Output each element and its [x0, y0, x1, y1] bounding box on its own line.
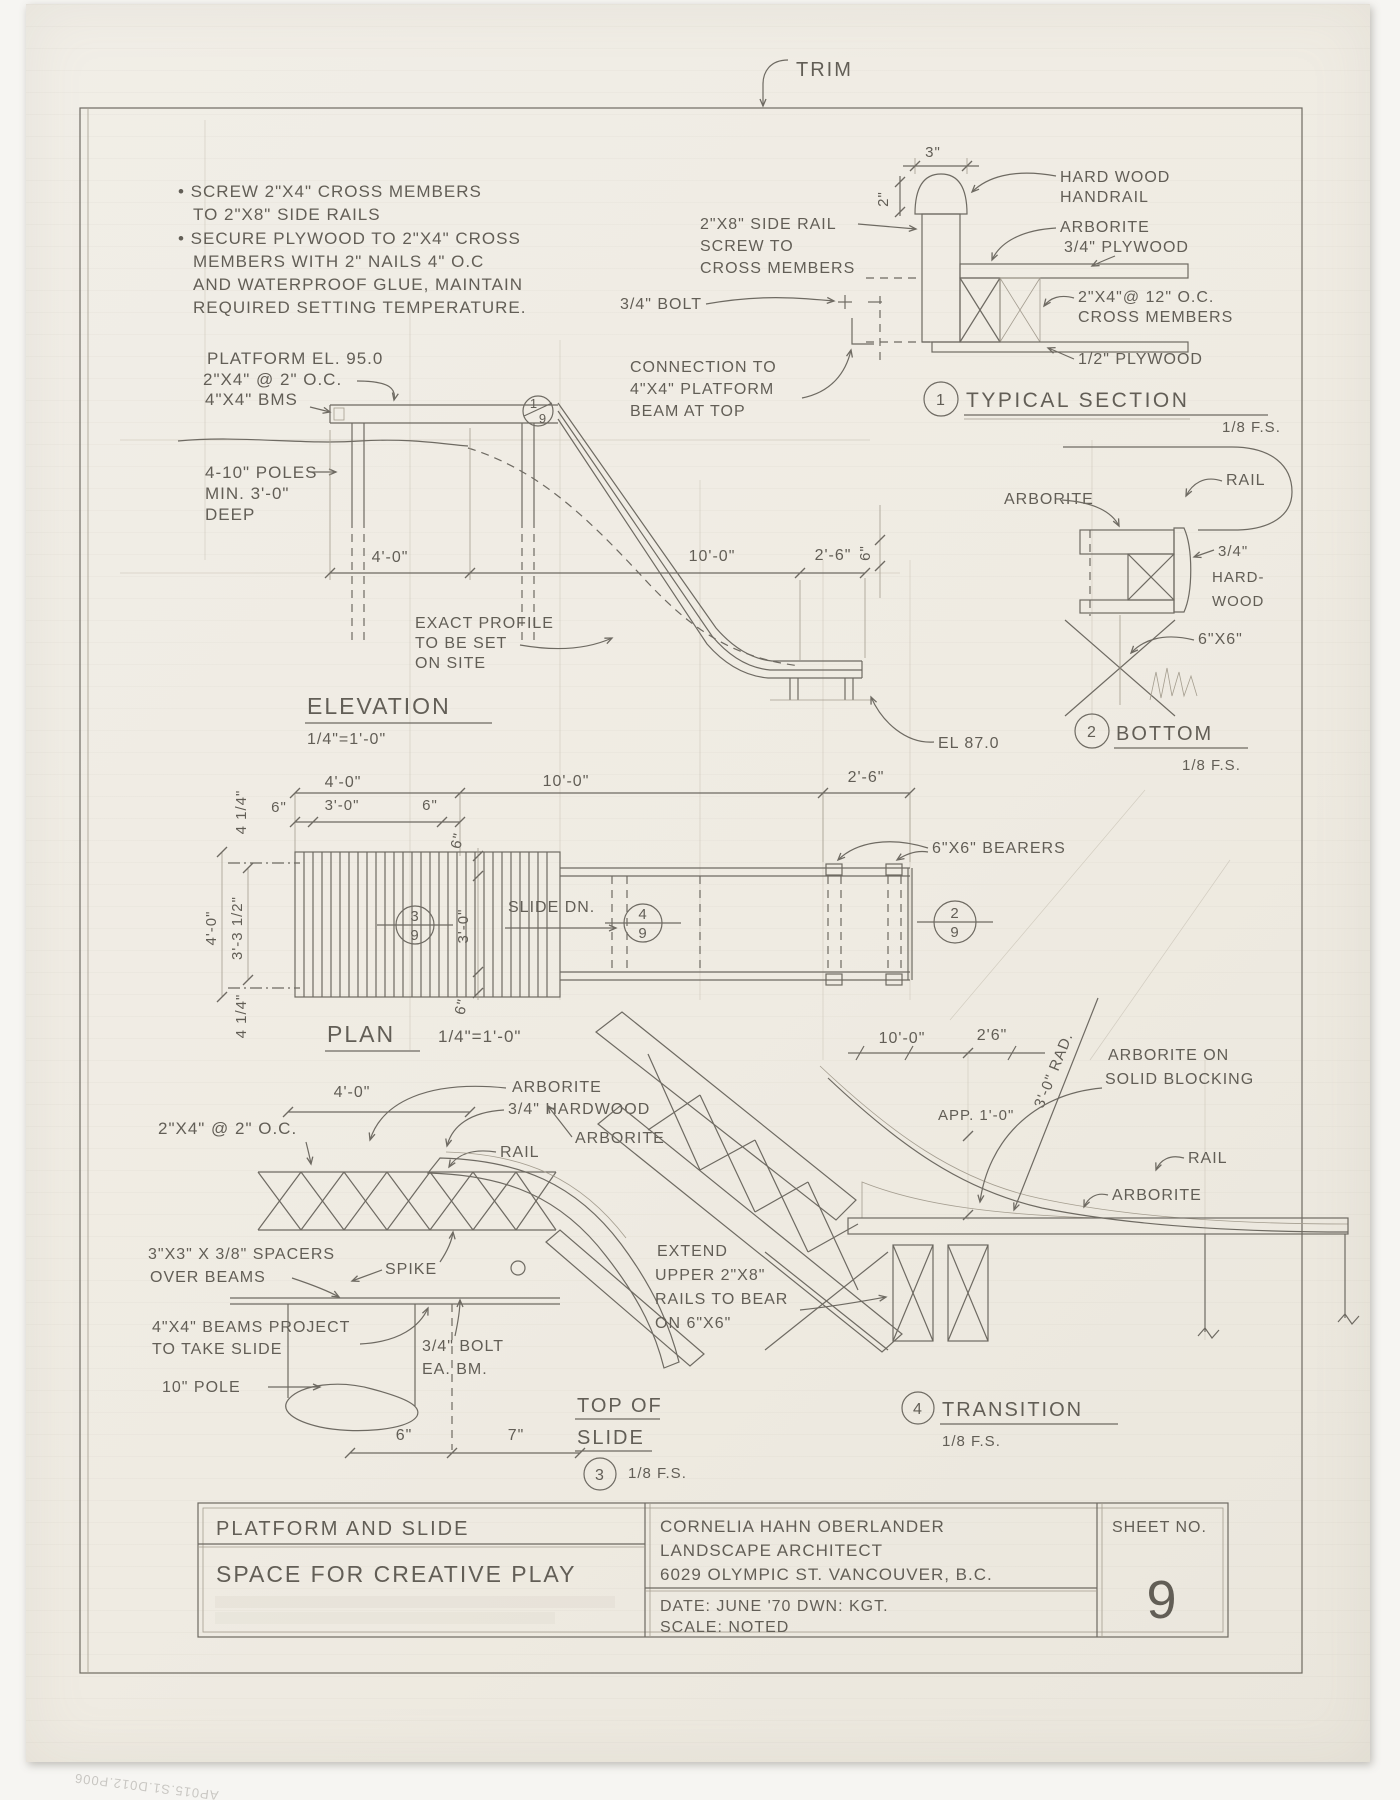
poles-label: DEEP — [205, 505, 255, 524]
section-marker: 1 — [530, 396, 538, 411]
side-rail-label: CROSS MEMBERS — [700, 260, 855, 277]
dim: 6" — [422, 797, 438, 814]
beams-label: 4"X4" BMS — [205, 390, 298, 409]
sheet-no-label: SHEET NO. — [1112, 1519, 1207, 1536]
arborite-label: ARBORITE — [575, 1130, 665, 1147]
section-marker: 4 — [638, 906, 647, 923]
trim-label: TRIM — [796, 59, 853, 81]
cross-members-label: 2"X4"@ 12" O.C. — [1078, 289, 1214, 306]
date-line: DATE: JUNE '70 DWN: KGT. — [660, 1598, 889, 1615]
poles-label: 4-10" POLES — [205, 463, 317, 482]
hardwood-label: HARD- — [1212, 569, 1265, 586]
detail-title: TYPICAL SECTION — [966, 389, 1189, 412]
rail-label: RAIL — [1188, 1150, 1228, 1167]
view-scale: 1/4"=1'-0" — [307, 731, 386, 748]
blocking-label: SOLID BLOCKING — [1105, 1071, 1254, 1088]
general-notes: • SCREW 2"X4" CROSS MEMBERS TO 2"X8" SID… — [178, 182, 526, 317]
detail-scale: 1/8 F.S. — [1182, 757, 1241, 774]
plywood-12-label: 1/2" PLYWOOD — [1078, 351, 1203, 368]
detail-title: SLIDE — [577, 1427, 645, 1449]
extend-label: UPPER 2"X8" — [655, 1267, 765, 1284]
dim: 6" — [447, 831, 467, 851]
dim: 2'-6" — [815, 547, 852, 564]
detail-title: BOTTOM — [1116, 723, 1213, 745]
dim: 4'-0" — [203, 911, 220, 946]
arborite-label: ARBORITE — [1060, 219, 1150, 236]
bolt-label: 3/4" BOLT — [422, 1338, 504, 1355]
detail-scale: 1/8 F.S. — [1222, 419, 1281, 436]
dim: 4 1/4" — [233, 790, 250, 835]
platform-el-label: PLATFORM EL. 95.0 — [207, 349, 383, 368]
hardwood-handrail-label: HANDRAIL — [1060, 189, 1149, 206]
scanned-drawing-sheet: TRIM • SCREW 2"X4" CROSS MEMBERS TO 2"X8… — [0, 0, 1400, 1800]
beams-label: 4"X4" BEAMS PROJECT — [152, 1319, 350, 1336]
side-rail-label: SCREW TO — [700, 238, 794, 255]
dim: 2'-6" — [848, 769, 885, 786]
hardwood-handrail-label: HARD WOOD — [1060, 169, 1170, 186]
dim: 10'-0" — [879, 1030, 926, 1047]
archive-pencil-note: AP015.S1.D012.P006 — [73, 1771, 219, 1800]
spacers-label: 3"X3" X 3/8" SPACERS — [148, 1246, 335, 1263]
detail-scale: 1/8 F.S. — [628, 1465, 687, 1482]
project-subtitle: SPACE FOR CREATIVE PLAY — [216, 1561, 576, 1587]
detail-scale: 1/8 F.S. — [942, 1433, 1001, 1450]
dim: 2'6" — [977, 1027, 1008, 1044]
note-line: REQUIRED SETTING TEMPERATURE. — [193, 298, 526, 317]
dim: 3'-0" — [325, 797, 360, 814]
extend-label: EXTEND — [657, 1243, 728, 1260]
dim: 10'-0" — [543, 773, 590, 790]
approx-dim: APP. 1'-0" — [938, 1107, 1014, 1124]
sheet-border — [80, 108, 1302, 1673]
section-marker: 9 — [539, 411, 547, 426]
spacers-label: OVER BEAMS — [150, 1269, 266, 1286]
elevation-view: PLATFORM EL. 95.0 2"X4" @ 2" O.C. 4"X4" … — [178, 349, 1000, 752]
dim: 3'-3 1/2" — [229, 896, 246, 960]
profile-note: ON SITE — [415, 655, 486, 672]
bolt-label: EA. BM. — [422, 1361, 488, 1378]
spike-label: SPIKE — [385, 1261, 437, 1278]
rail-label: RAIL — [1226, 472, 1266, 489]
view-scale: 1/4"=1'-0" — [438, 1027, 521, 1046]
view-title: ELEVATION — [307, 693, 451, 719]
dim: 4'-0" — [372, 549, 409, 566]
bearers-label: 6"X6" BEARERS — [932, 840, 1066, 857]
detail-number: 4 — [913, 1401, 923, 1418]
extend-label: ON 6"X6" — [655, 1315, 731, 1332]
cross-members-label: CROSS MEMBERS — [1078, 309, 1233, 326]
section-marker: 9 — [638, 925, 647, 942]
rail-label: RAIL — [500, 1144, 540, 1161]
poles-label: MIN. 3'-0" — [205, 484, 289, 503]
pole-label: 10" POLE — [162, 1379, 241, 1396]
trim-note: TRIM — [763, 59, 853, 106]
detail-title: TOP OF — [577, 1395, 663, 1417]
title-block: PLATFORM AND SLIDE SPACE FOR CREATIVE PL… — [198, 1503, 1228, 1637]
beams-label: TO TAKE SLIDE — [152, 1341, 282, 1358]
cross-label: 2"X4" @ 2" O.C. — [203, 370, 342, 389]
profile-note: TO BE SET — [415, 635, 507, 652]
dim: 4'-0" — [334, 1084, 371, 1101]
bolt-label: 3/4" BOLT — [620, 296, 702, 313]
firm-address: 6029 OLYMPIC ST. VANCOUVER, B.C. — [660, 1565, 993, 1584]
connection-label: 4"X4" PLATFORM — [630, 381, 774, 398]
connection-label: BEAM AT TOP — [630, 403, 746, 420]
dim: 10'-0" — [689, 548, 736, 565]
dim: 7" — [508, 1427, 525, 1444]
dim-3in: 3" — [925, 144, 941, 161]
dim: 6" — [451, 997, 471, 1017]
side-rail-label: 2"X8" SIDE RAIL — [700, 216, 837, 233]
sheet-number: 9 — [1146, 1570, 1177, 1630]
detail-title: TRANSITION — [942, 1399, 1083, 1421]
dim: 6" — [396, 1427, 413, 1444]
bottom-detail: ARBORITE RAIL 3/4" HARD- WOOD 6"X6" 2 BO… — [1004, 447, 1292, 774]
dim: 4'-0" — [325, 774, 362, 791]
post-label: 6"X6" — [1198, 631, 1243, 648]
top-of-slide-detail: 4'-0" 2"X4" @ 2" O.C. ARBORITE 3/4" HARD… — [148, 1079, 704, 1490]
hardwood-label: 3/4" — [1218, 543, 1248, 560]
cross-label: 2"X4" @ 2" O.C. — [158, 1119, 297, 1138]
dim: 4 1/4" — [233, 994, 250, 1039]
section-marker: 3 — [410, 908, 419, 925]
section-marker: 9 — [950, 924, 959, 941]
slide-dn-label: SLIDE DN. — [508, 899, 595, 916]
scale-line: SCALE: NOTED — [660, 1619, 789, 1636]
dim: 6" — [271, 799, 287, 816]
el-bottom-label: EL 87.0 — [938, 735, 1000, 752]
plan-view: 4'-0" 10'-0" 2'-6" 6" 3'-0" 6" 4 1/4" 4'… — [203, 769, 1066, 1051]
firm-name: CORNELIA HAHN OBERLANDER — [660, 1517, 945, 1536]
note-line: AND WATERPROOF GLUE, MAINTAIN — [193, 275, 523, 294]
view-title: PLAN — [327, 1021, 395, 1047]
note-line: • SECURE PLYWOOD TO 2"X4" CROSS — [178, 229, 521, 248]
dim-2in: 2" — [875, 191, 892, 207]
typical-section-detail: 3" 2" HARD WOOD HANDRAIL ARBORITE 3/4" P… — [620, 144, 1281, 436]
arborite-label: ARBORITE — [512, 1079, 602, 1096]
extend-label: RAILS TO BEAR — [655, 1291, 788, 1308]
dim: 3'-0" — [455, 909, 472, 944]
firm-role: LANDSCAPE ARCHITECT — [660, 1541, 883, 1560]
detail-number: 2 — [1087, 724, 1097, 741]
arborite-label: ARBORITE — [1004, 491, 1094, 508]
arborite-label: ARBORITE — [1112, 1187, 1202, 1204]
plywood-34-label: 3/4" PLYWOOD — [1064, 239, 1189, 256]
project-title: PLATFORM AND SLIDE — [216, 1518, 469, 1540]
note-line: TO 2"X8" SIDE RAILS — [193, 205, 381, 224]
blocking-label: ARBORITE ON — [1108, 1047, 1229, 1064]
transition-detail: 10'-0" 2'6" 3'-0" RAD. ARBORITE ON SOLID… — [596, 998, 1359, 1450]
note-line: MEMBERS WITH 2" NAILS 4" O.C — [193, 252, 484, 271]
hardwood-label: WOOD — [1212, 593, 1264, 610]
hardwood-label: 3/4" HARDWOOD — [508, 1101, 650, 1118]
connection-label: CONNECTION TO — [630, 359, 777, 376]
section-marker: 9 — [410, 927, 419, 944]
note-line: • SCREW 2"X4" CROSS MEMBERS — [178, 182, 482, 201]
detail-number: 3 — [595, 1467, 605, 1484]
drawing-canvas: TRIM • SCREW 2"X4" CROSS MEMBERS TO 2"X8… — [0, 0, 1400, 1800]
profile-note: EXACT PROFILE — [415, 615, 554, 632]
detail-number: 1 — [936, 392, 946, 409]
section-marker: 2 — [950, 905, 959, 922]
dim-6in: 6" — [857, 545, 874, 561]
